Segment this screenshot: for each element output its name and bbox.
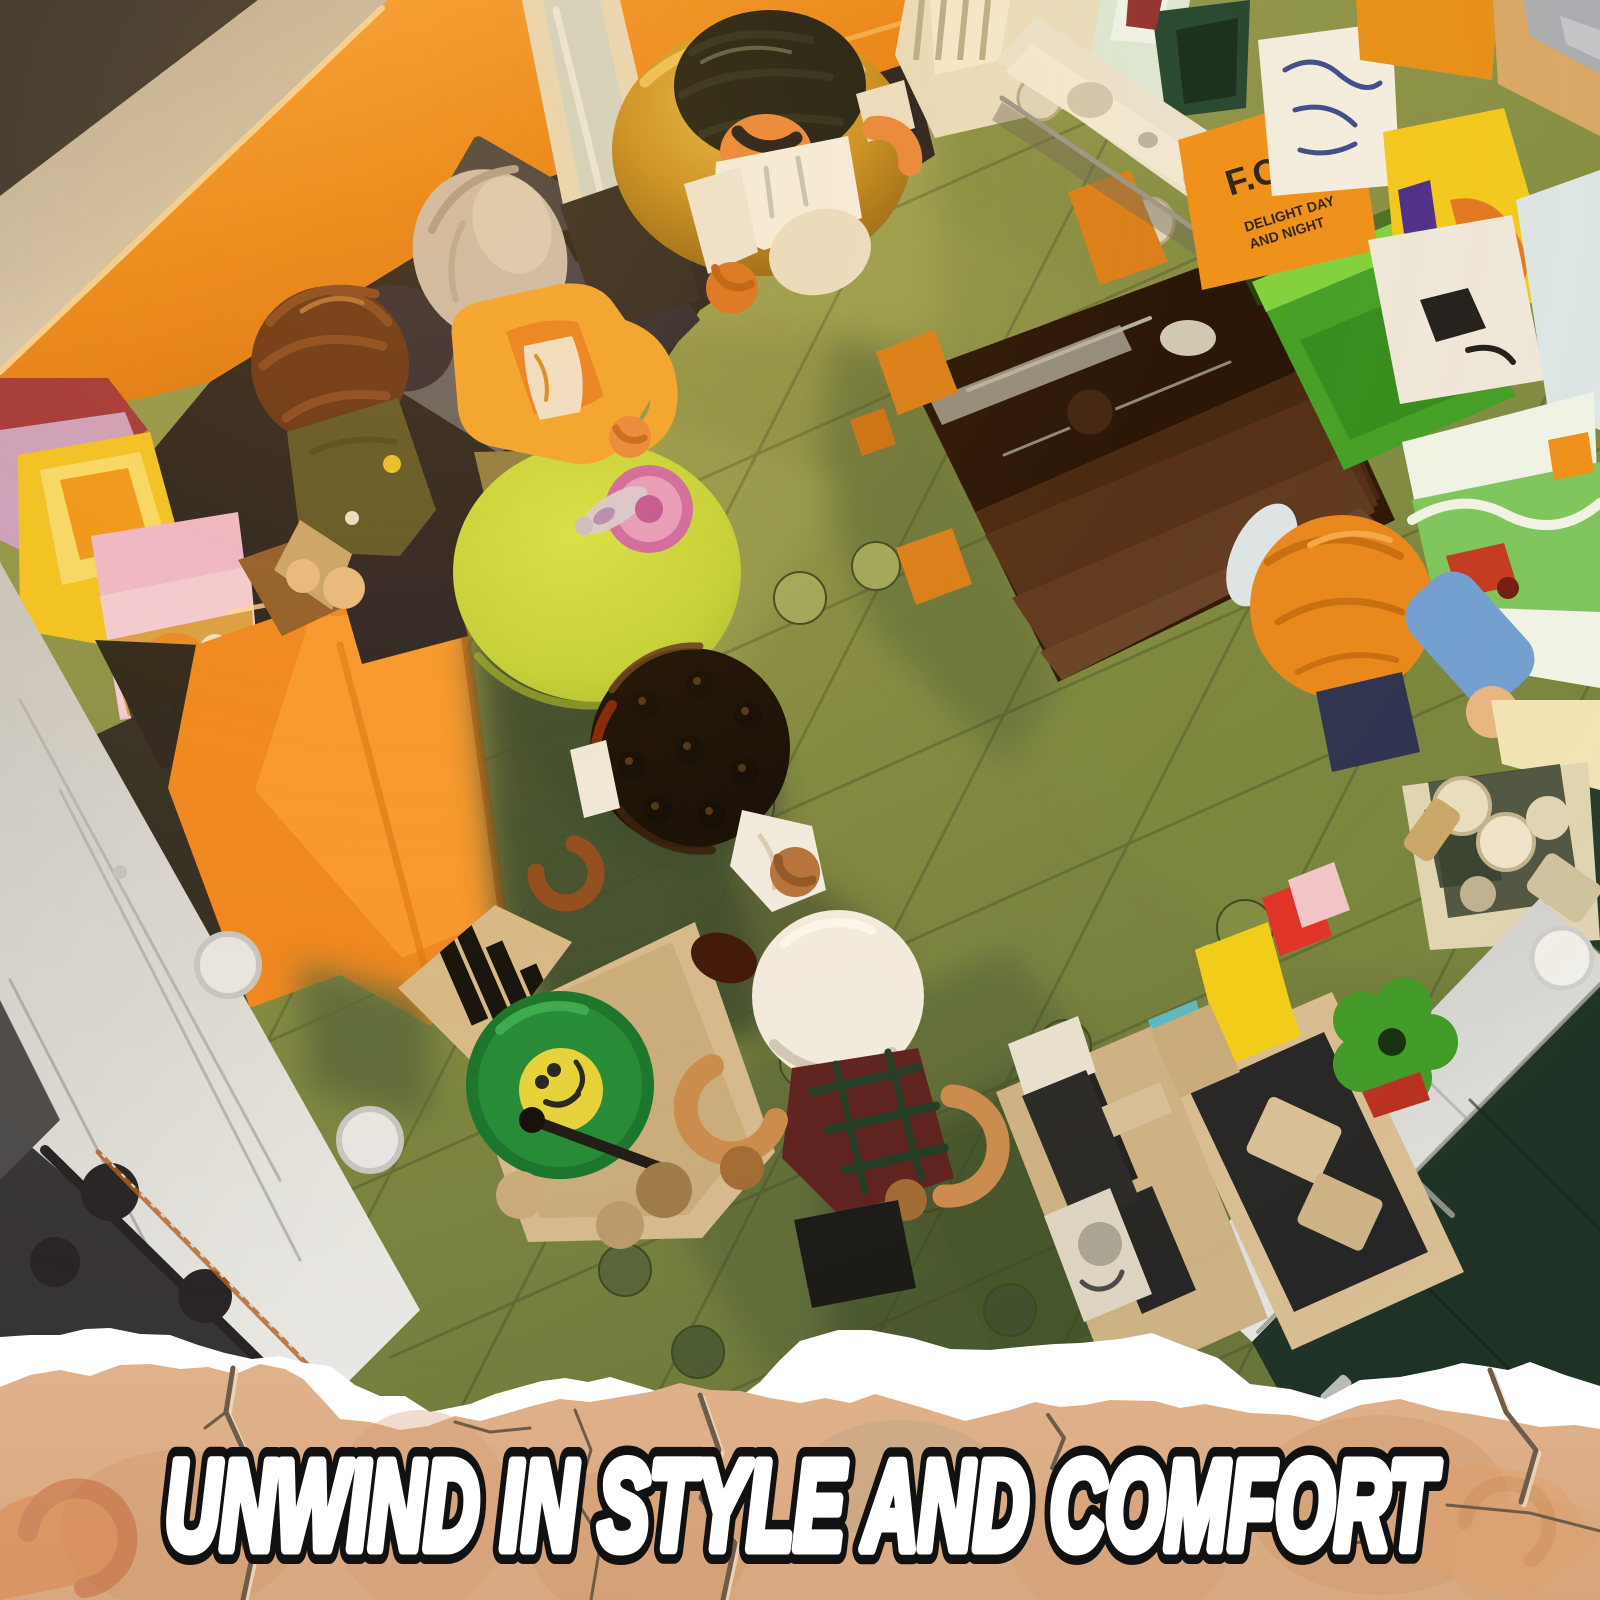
svg-text:UNWIND IN STYLE AND COMFORT: UNWIND IN STYLE AND COMFORT bbox=[165, 1435, 1440, 1576]
